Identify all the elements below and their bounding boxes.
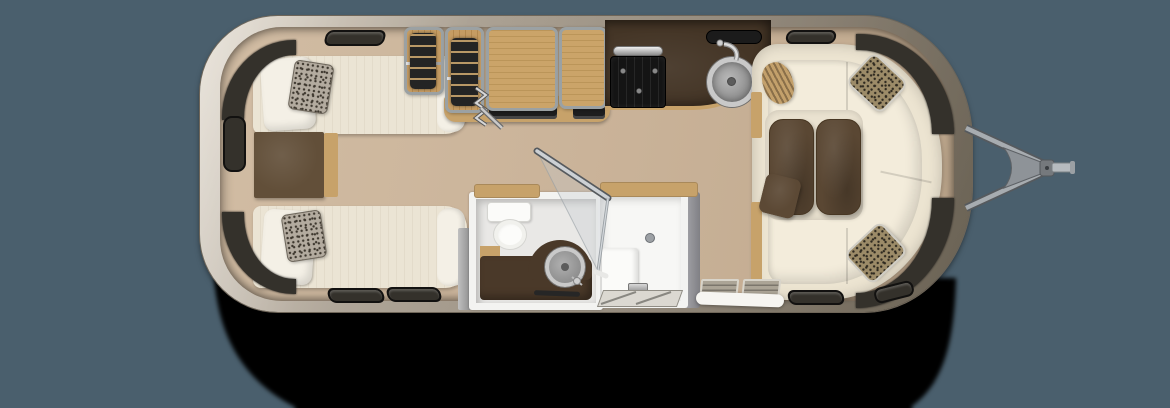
shower-glass-door <box>537 151 608 271</box>
floorplan-stage <box>0 0 1170 408</box>
tow-hitch <box>966 128 1075 208</box>
detail-overlay <box>0 0 1170 408</box>
